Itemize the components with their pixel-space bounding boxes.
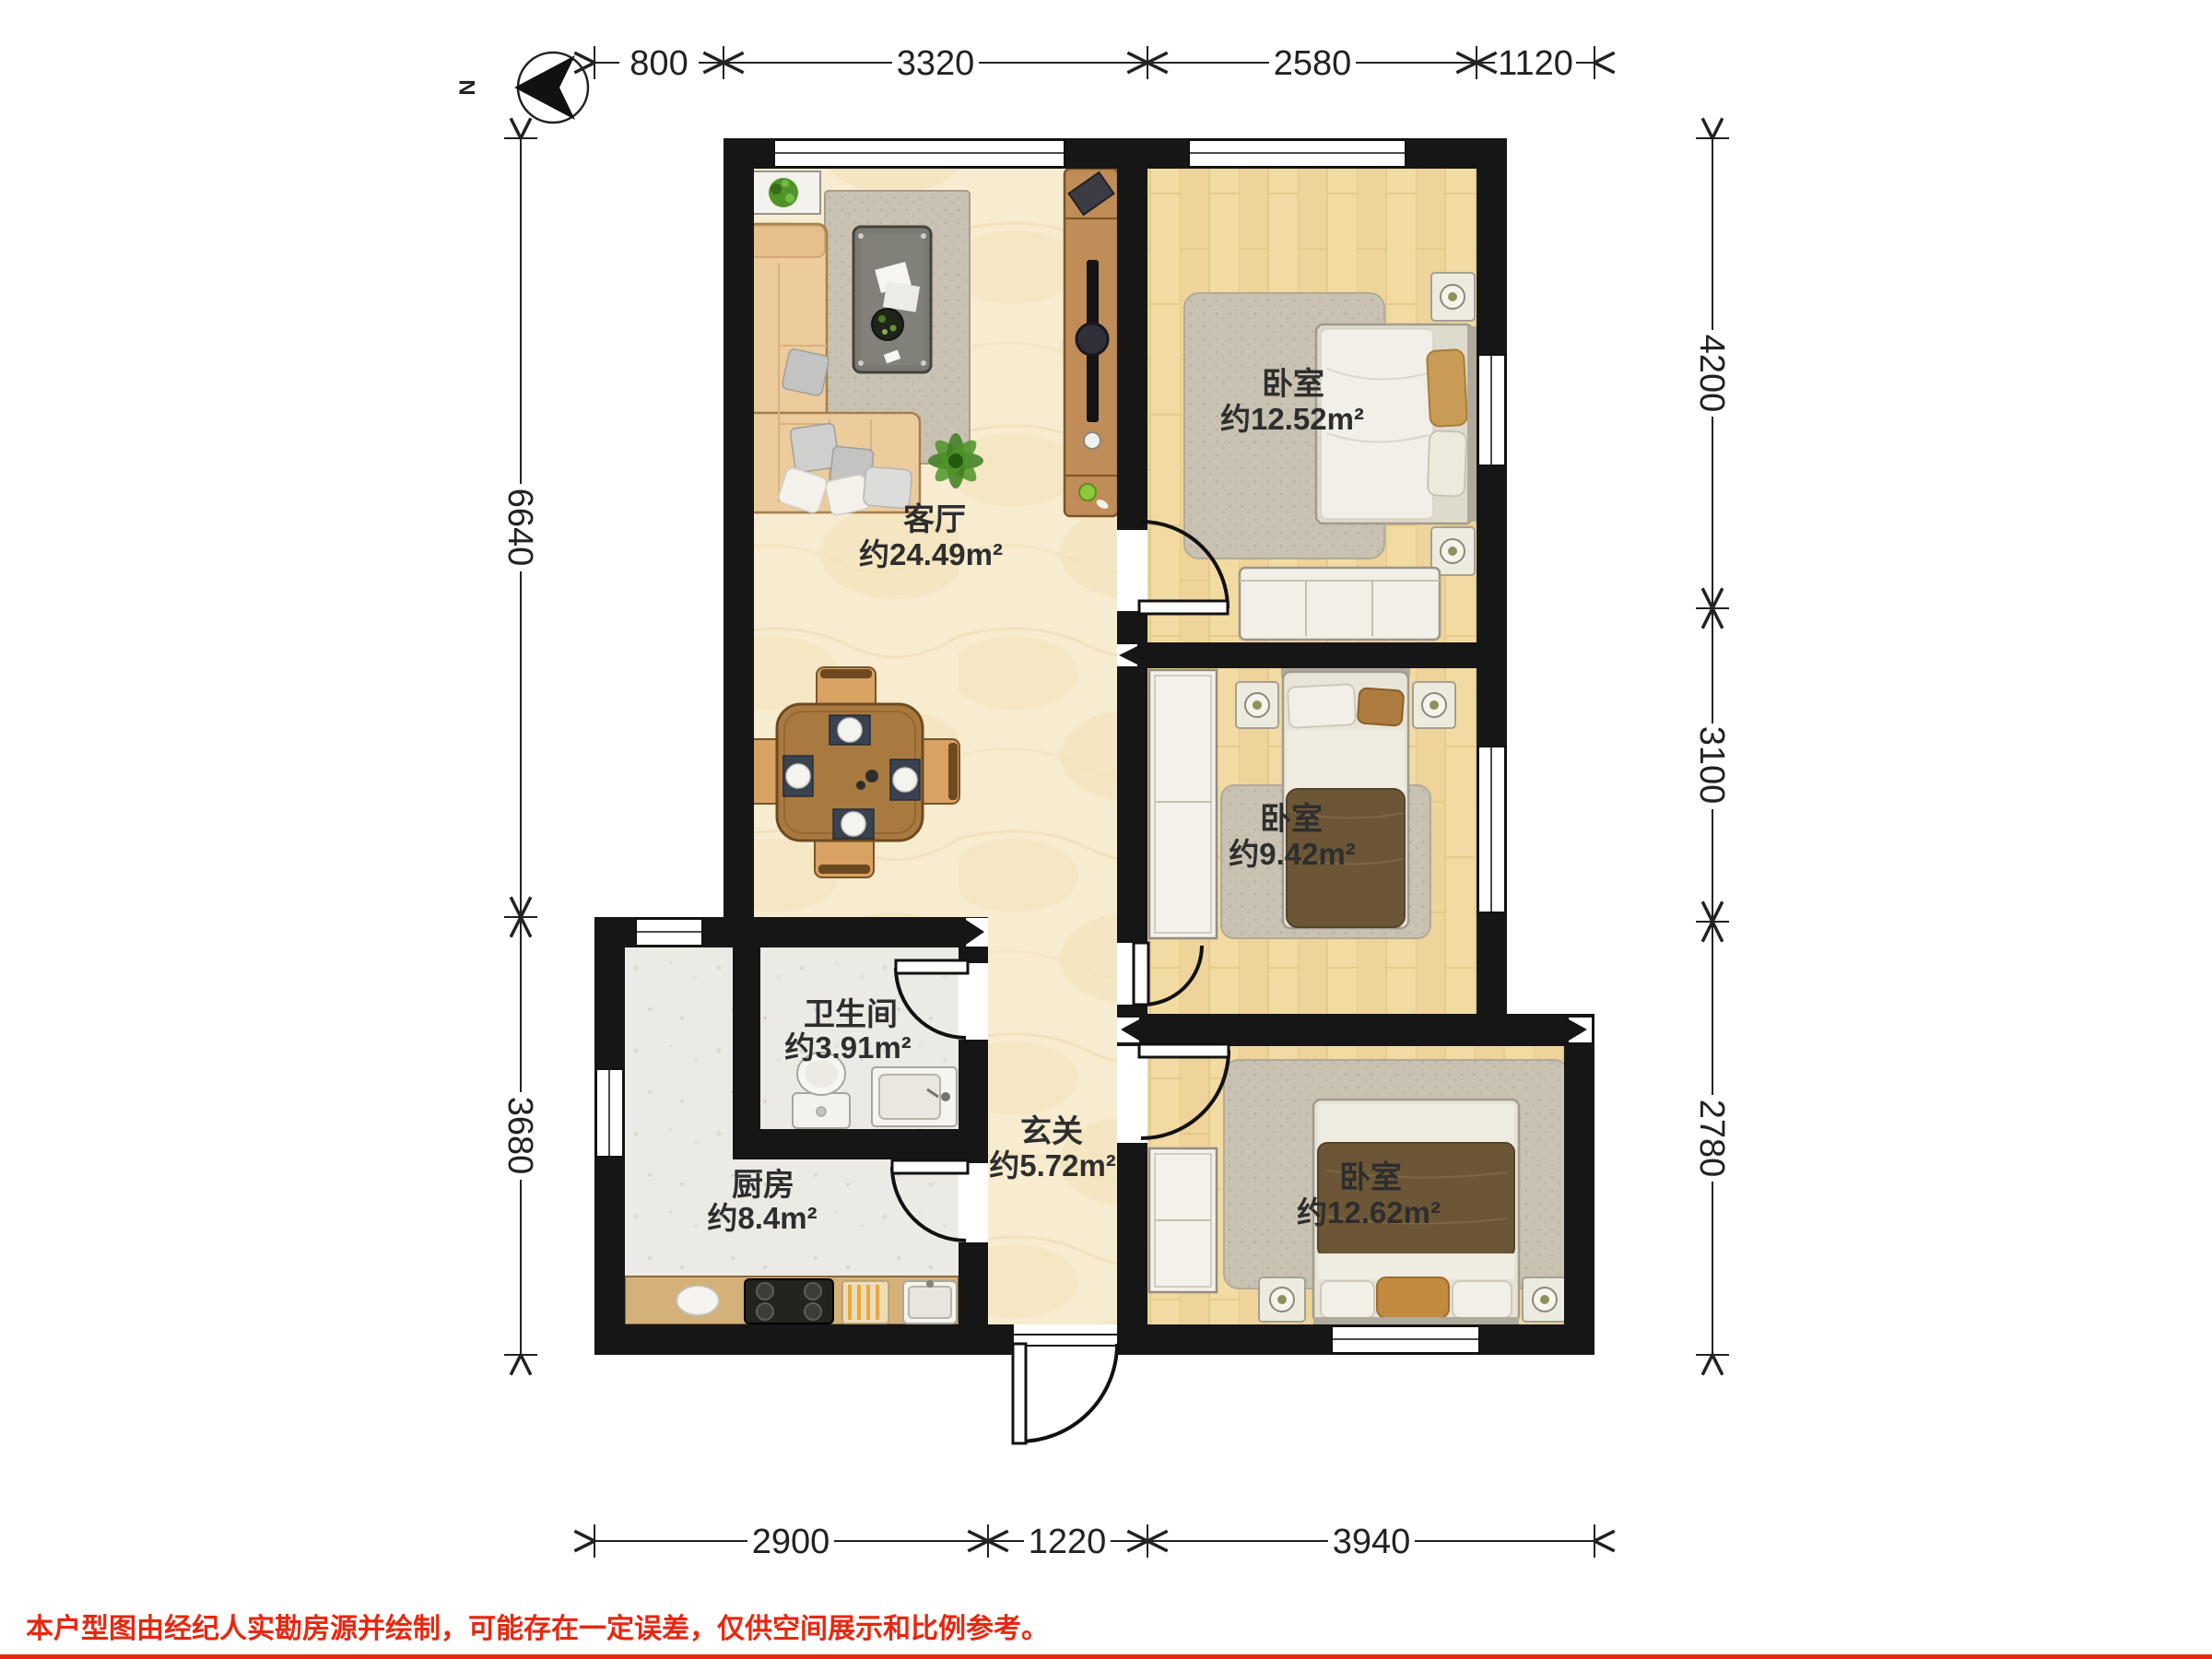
- bathroom-name: 卫生间: [804, 997, 898, 1032]
- bottom-red-strip: [0, 1654, 2212, 1659]
- wall-bedrooms-divider-1: [1117, 642, 1477, 668]
- north-arrow: N: [455, 53, 588, 123]
- coffee-table: [853, 227, 931, 372]
- wall-tv: [1117, 169, 1147, 530]
- dim-bottom-3940: 3940: [1333, 1523, 1411, 1561]
- stove-icon: [745, 1279, 833, 1324]
- window-bedroom-top-right: [1478, 355, 1505, 465]
- window-kitchen-left: [596, 1069, 623, 1157]
- living-room-area: 约24.49m²: [859, 537, 1003, 571]
- disclaimer-text: 本户型图由经纪人实勘房源并绘制，可能存在一定误差，仅供空间展示和比例参考。: [26, 1613, 1049, 1644]
- plate-icon: [838, 718, 862, 742]
- living-room-name: 客厅: [903, 501, 966, 537]
- bedroom-middle-area: 约9.42m²: [1229, 837, 1356, 871]
- wall-foyer-left-b: [959, 1040, 988, 1163]
- dim-top-3320: 3320: [897, 44, 975, 83]
- floor-plant-icon: [928, 433, 983, 488]
- dim-top-800: 800: [629, 44, 688, 83]
- wall-foyer-left-c: [959, 1242, 988, 1324]
- wall-bedrooms-divider-2: [1117, 1014, 1594, 1046]
- bedroom-top-name: 卧室: [1262, 366, 1324, 402]
- door-entry: [1013, 1324, 1117, 1443]
- plate-icon: [841, 812, 865, 836]
- pillow: [1358, 688, 1405, 725]
- floorplan-canvas: 客厅 约24.49m² 卧室 约12.52m² 卧室 约9.42m² 卧室 约1…: [0, 0, 2212, 1659]
- bedroom-bottom-area: 约12.62m²: [1297, 1195, 1441, 1230]
- dim-right-4200: 4200: [1692, 335, 1731, 413]
- nightstand: [1431, 273, 1475, 321]
- sofa-cushion: [782, 348, 829, 396]
- kitchen-sink-icon: [903, 1280, 957, 1324]
- dim-top-2580: 2580: [1274, 44, 1352, 83]
- pillow: [1288, 684, 1356, 728]
- wall-living-left: [724, 138, 754, 917]
- wall-bottom-left: [594, 1324, 1014, 1355]
- dim-left-6640: 6640: [500, 488, 539, 567]
- dim-bottom-2900: 2900: [752, 1523, 830, 1561]
- compass-needle-icon: [514, 55, 575, 120]
- bed: [1281, 666, 1410, 928]
- table-plant-icon: [872, 309, 903, 340]
- dish-icon: [677, 1286, 719, 1315]
- window-bedroom-top: [1189, 140, 1406, 167]
- cutting-board-icon: [842, 1281, 888, 1324]
- bathroom-area: 约3.91m²: [784, 1030, 912, 1065]
- pillow: [1427, 349, 1467, 427]
- wall-bedroom-bottom-left: [1117, 1143, 1147, 1324]
- bedroom-top-area: 约12.52m²: [1220, 402, 1364, 436]
- bedroom-bottom-name: 卧室: [1339, 1159, 1402, 1195]
- tv-console: [1065, 169, 1118, 516]
- plate-icon: [893, 768, 917, 792]
- pillow: [1428, 430, 1466, 496]
- wall-bathroom-left: [733, 947, 760, 1129]
- kitchen-area: 约8.4m²: [707, 1201, 817, 1235]
- window-living-top: [774, 140, 1065, 167]
- wardrobe: [1149, 1148, 1217, 1292]
- pillow: [1453, 1281, 1512, 1318]
- dim-bottom-1220: 1220: [1029, 1523, 1107, 1561]
- pillow: [1321, 1281, 1374, 1318]
- kitchen-floor-left: [625, 947, 733, 1324]
- potted-plant-icon: [769, 178, 798, 207]
- dim-right-2780: 2780: [1692, 1100, 1731, 1178]
- window-bedroom-middle-right: [1478, 747, 1505, 912]
- foyer-area: 约5.72m²: [989, 1148, 1116, 1182]
- bedroom-middle-name: 卧室: [1260, 801, 1323, 837]
- nightstand: [1236, 682, 1278, 728]
- pillow: [1377, 1277, 1449, 1318]
- nightstand: [1413, 682, 1455, 728]
- plate-icon: [786, 764, 810, 788]
- dresser: [1240, 568, 1440, 640]
- window-kitchen-top: [636, 919, 702, 946]
- window-bedroom-bottom: [1332, 1326, 1479, 1353]
- paper: [883, 281, 920, 312]
- dining-table: [777, 704, 923, 841]
- wall-tv-stub: [1117, 611, 1147, 642]
- nightstand: [1259, 1277, 1305, 1322]
- nightstand: [1523, 1277, 1567, 1322]
- sink-vanity-icon: [872, 1067, 957, 1126]
- wall-right-lower: [1564, 1014, 1594, 1355]
- wall-bedroom-middle-left: [1117, 668, 1147, 943]
- kitchen-fixtures: [625, 1277, 959, 1324]
- north-label: N: [455, 79, 480, 95]
- wall-bathroom-bottom: [733, 1129, 988, 1159]
- wardrobe: [1149, 670, 1217, 938]
- dim-right-3100: 3100: [1692, 726, 1731, 805]
- kitchen-name: 厨房: [732, 1168, 794, 1203]
- dim-top-1120: 1120: [1498, 44, 1573, 83]
- foyer-name: 玄关: [1020, 1114, 1083, 1149]
- dim-left-3680: 3680: [500, 1097, 539, 1175]
